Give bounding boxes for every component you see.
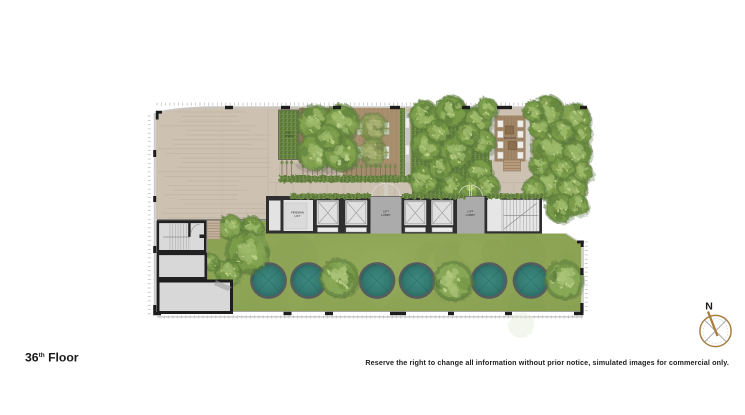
svg-text:LOBBY: LOBBY [381, 213, 391, 217]
svg-text:36th Floor: 36th Floor [25, 351, 79, 365]
svg-text:N: N [705, 301, 713, 313]
svg-text:LIFT: LIFT [295, 214, 301, 218]
svg-text:FARM: FARM [285, 134, 294, 138]
svg-text:Reserve the right to change al: Reserve the right to change all informat… [365, 358, 729, 367]
svg-text:LOBBY: LOBBY [466, 213, 476, 217]
svg-text:PAVILION: PAVILION [504, 136, 517, 140]
